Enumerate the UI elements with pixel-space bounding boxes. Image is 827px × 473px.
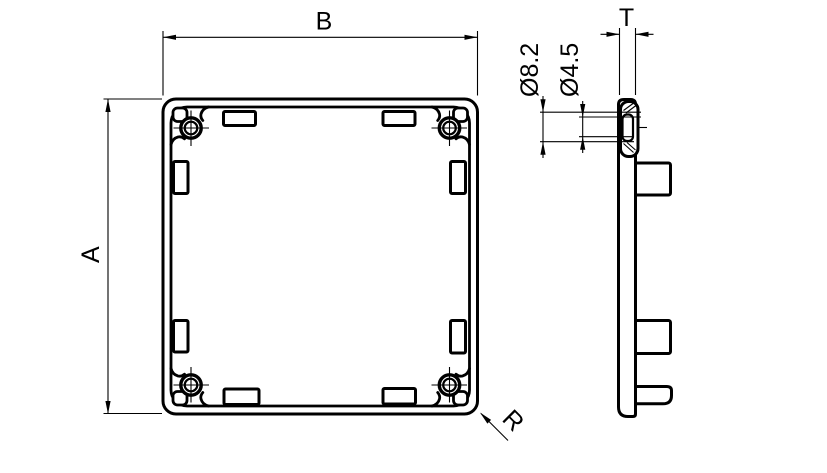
end-cap-side-view xyxy=(619,100,672,417)
mounting-slot-left-upper xyxy=(174,162,189,194)
arrowhead xyxy=(105,401,110,414)
arrowhead xyxy=(540,142,545,155)
arrowhead xyxy=(607,32,620,37)
mounting-slot-top-right xyxy=(383,112,415,126)
dimension-label-hole-diameter: Ø4.5 xyxy=(556,43,584,97)
mounting-slot-right-upper xyxy=(451,162,466,194)
end-cap-front-view xyxy=(163,99,478,414)
corner-boss-bottom-right xyxy=(432,367,470,406)
arrowhead xyxy=(636,32,649,37)
dimension-width-b: B xyxy=(163,8,478,96)
corner-boss-top-right xyxy=(432,107,470,146)
dimension-hole-diameter: Ø4.5 xyxy=(556,43,641,153)
dimension-thickness-t: T xyxy=(601,4,654,95)
corner-boss-bottom-left xyxy=(171,367,209,406)
arrowhead xyxy=(580,104,585,117)
mounting-slot-bottom-right xyxy=(383,389,416,405)
dimension-label-a: A xyxy=(77,246,105,263)
dimension-height-a: A xyxy=(77,99,162,414)
arrowhead xyxy=(580,137,585,150)
dimension-label-t: T xyxy=(619,4,634,32)
radius-callout-r: R xyxy=(480,404,529,440)
mounting-slot-bottom-left xyxy=(224,389,259,405)
corner-boss-top-left xyxy=(171,107,209,146)
arrowhead xyxy=(465,35,478,40)
arrowhead xyxy=(540,99,545,112)
dimension-label-boss-diameter: Ø8.2 xyxy=(516,43,544,97)
dimension-label-r: R xyxy=(497,404,530,437)
front-outer-outline xyxy=(163,99,478,414)
mounting-slot-top-left xyxy=(224,112,256,126)
arrowhead xyxy=(163,35,176,40)
arrowhead xyxy=(105,99,110,112)
dimension-label-b: B xyxy=(316,8,333,36)
technical-drawing-canvas: B A T Ø8.2 Ø4.5 xyxy=(0,0,827,473)
front-inner-outline xyxy=(171,107,470,406)
mounting-slot-right-lower xyxy=(451,321,466,354)
mounting-slot-left-lower xyxy=(174,321,189,353)
